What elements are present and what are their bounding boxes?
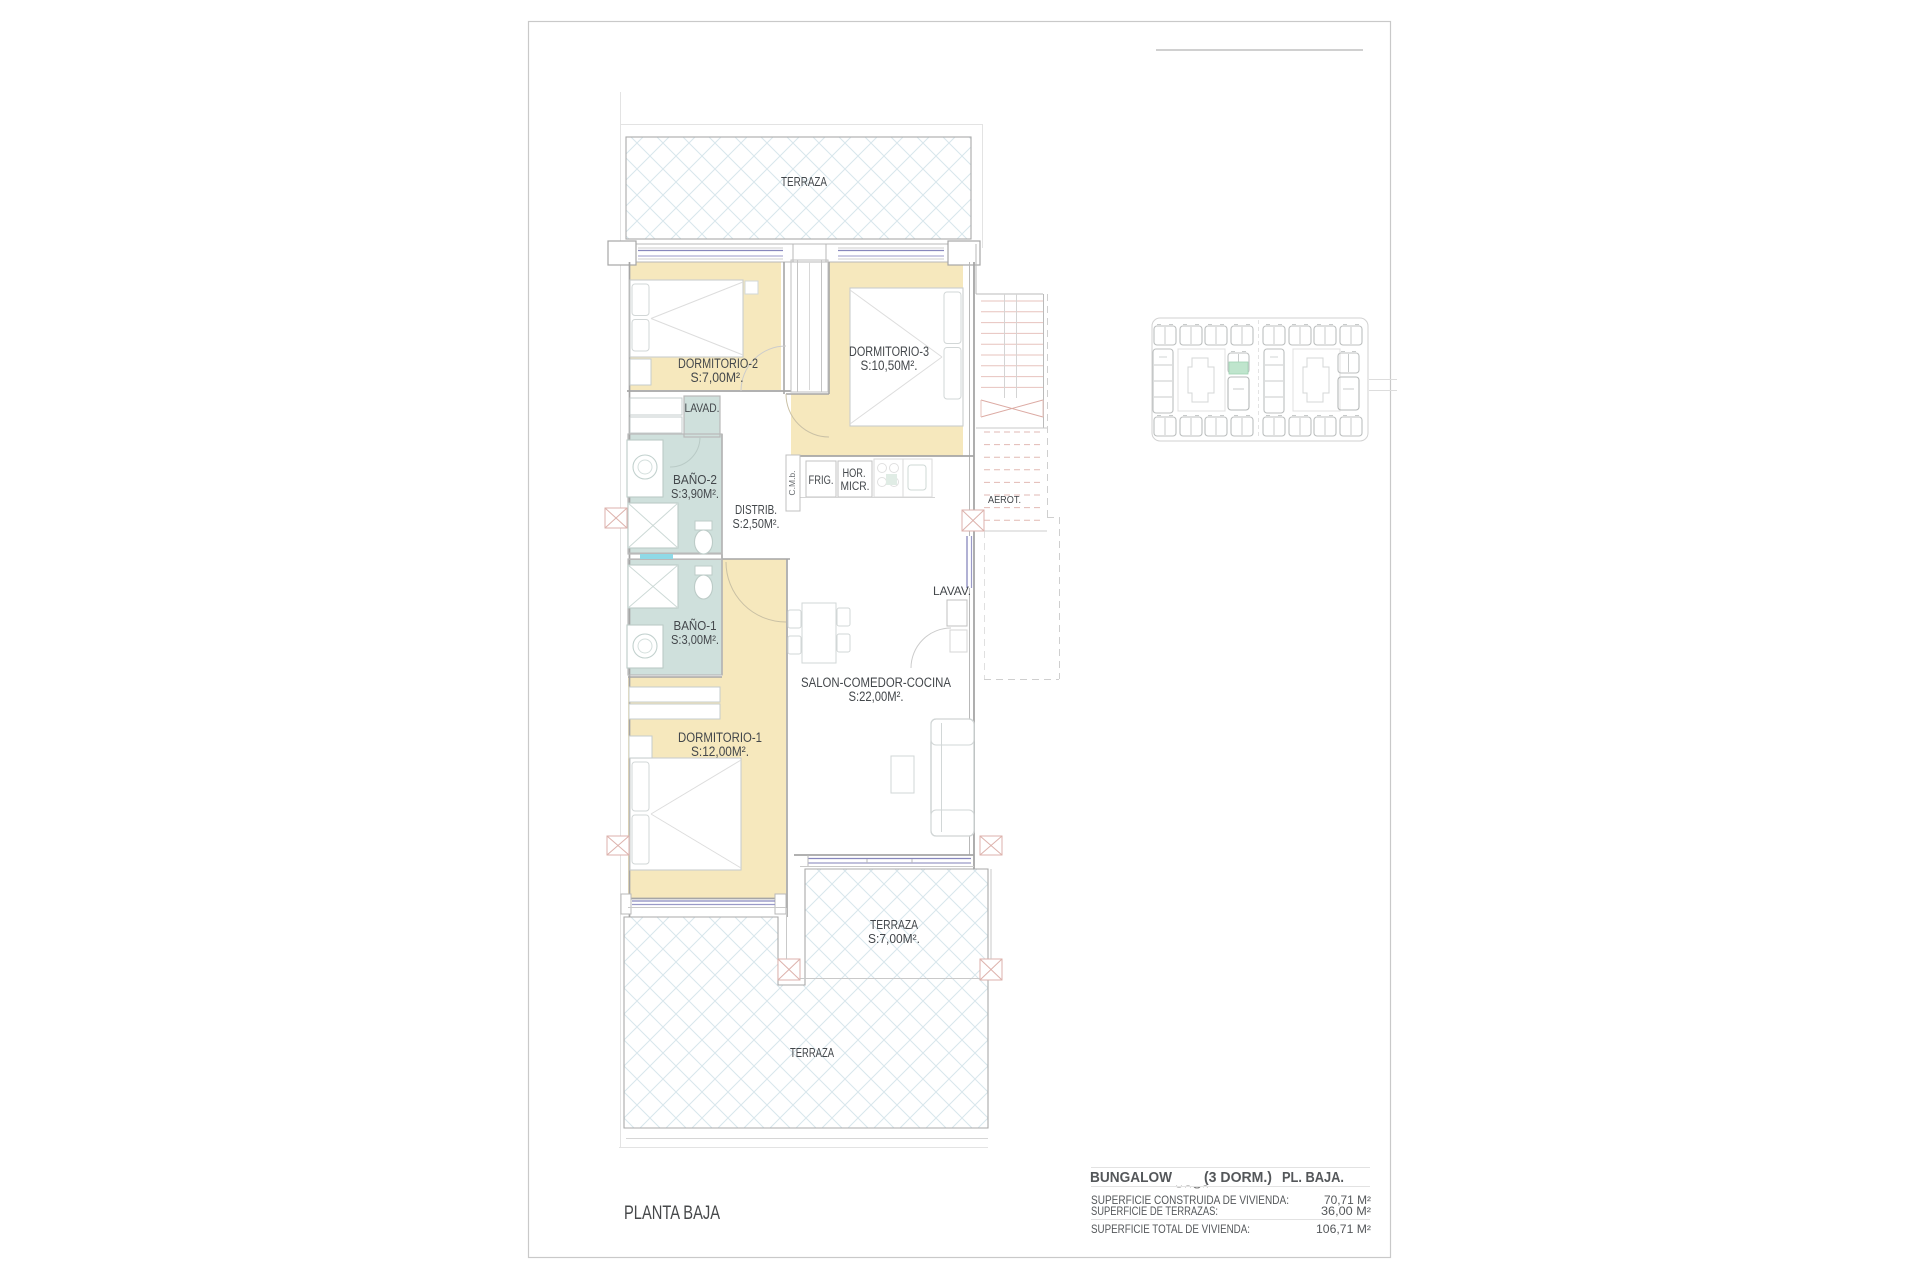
svg-text:DORMITORIO-1: DORMITORIO-1: [678, 730, 762, 745]
svg-text:S:2,50M².: S:2,50M².: [733, 517, 780, 531]
svg-text:PL. BAJA.: PL. BAJA.: [1282, 1170, 1344, 1186]
svg-text:MICR.: MICR.: [841, 481, 870, 493]
svg-text:TERRAZA: TERRAZA: [781, 175, 828, 189]
svg-text:FRIG.: FRIG.: [809, 475, 834, 487]
svg-text:AEROT.: AEROT.: [988, 494, 1021, 506]
svg-text:S:7,00M².: S:7,00M².: [868, 932, 920, 946]
svg-text:DORMITORIO-3: DORMITORIO-3: [849, 344, 929, 359]
svg-text:106,71 M²: 106,71 M²: [1316, 1224, 1371, 1236]
svg-text:SUPERFICIE DE TERRAZAS:: SUPERFICIE DE TERRAZAS:: [1091, 1206, 1218, 1218]
svg-text:(3 DORM.): (3 DORM.): [1204, 1170, 1272, 1186]
svg-text:PLANTA BAJA: PLANTA BAJA: [624, 1202, 720, 1224]
svg-text:BAÑO-1: BAÑO-1: [674, 619, 717, 633]
svg-text:LAVAD.: LAVAD.: [685, 403, 720, 415]
svg-text:TERRAZA: TERRAZA: [870, 918, 919, 932]
svg-text:BUNGALOW: BUNGALOW: [1090, 1170, 1172, 1186]
svg-text:S:22,00M².: S:22,00M².: [849, 689, 904, 704]
svg-text:TERRAZA: TERRAZA: [790, 1046, 834, 1060]
svg-text:SALON-COMEDOR-COCINA: SALON-COMEDOR-COCINA: [801, 675, 951, 690]
svg-text:SUPERFICIE TOTAL DE VIVIENDA:: SUPERFICIE TOTAL DE VIVIENDA:: [1091, 1224, 1250, 1236]
svg-text:DISTRIB.: DISTRIB.: [735, 503, 777, 517]
svg-text:HOR.: HOR.: [843, 468, 866, 480]
svg-text:BAÑO-2: BAÑO-2: [673, 473, 717, 487]
svg-text:C.M.b.: C.M.b.: [787, 470, 797, 495]
svg-text:S:7,00M².: S:7,00M².: [691, 370, 744, 385]
svg-text:DORMITORIO-2: DORMITORIO-2: [678, 356, 758, 371]
svg-text:S:10,50M².: S:10,50M².: [861, 358, 918, 373]
svg-text:36,00 M²: 36,00 M²: [1321, 1206, 1371, 1218]
svg-text:LAVAV.: LAVAV.: [933, 586, 971, 598]
svg-text:S:3,90M².: S:3,90M².: [671, 487, 719, 501]
svg-text:S:12,00M².: S:12,00M².: [691, 744, 749, 759]
svg-text:S:3,00M².: S:3,00M².: [671, 633, 719, 647]
